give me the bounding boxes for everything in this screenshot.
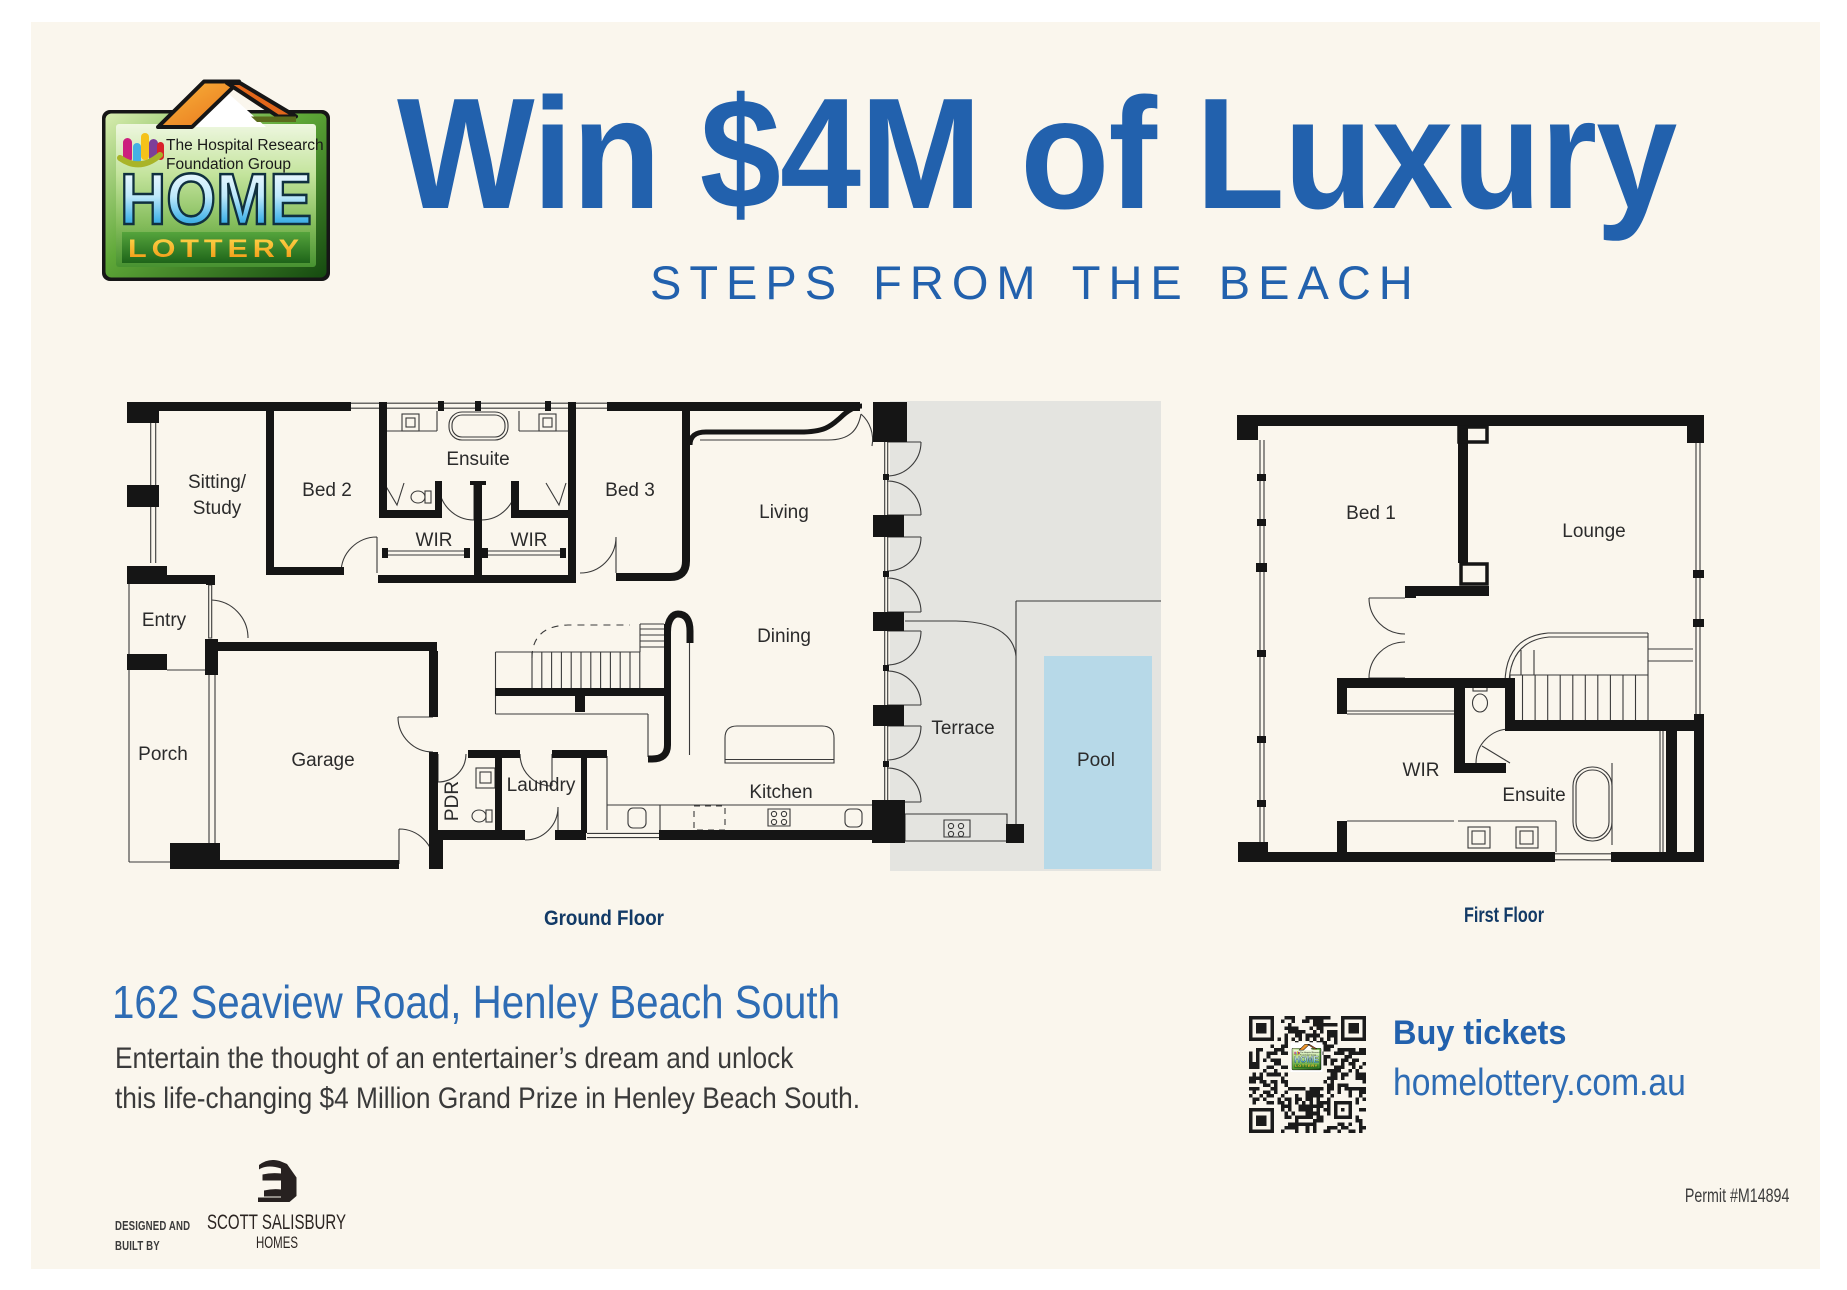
svg-text:Terrace: Terrace — [931, 718, 994, 739]
svg-text:Laundry: Laundry — [507, 775, 576, 796]
svg-text:Study: Study — [193, 498, 242, 519]
svg-text:Bed 3: Bed 3 — [605, 480, 655, 501]
svg-text:Entry: Entry — [142, 610, 187, 631]
svg-text:PDR: PDR — [442, 781, 463, 821]
svg-text:LOTTERY: LOTTERY — [128, 235, 304, 263]
svg-text:Lounge: Lounge — [1562, 521, 1625, 542]
svg-text:Kitchen: Kitchen — [749, 782, 812, 803]
svg-text:Porch: Porch — [138, 744, 188, 765]
svg-text:Bed 2: Bed 2 — [302, 480, 352, 501]
svg-text:Ensuite: Ensuite — [446, 449, 509, 470]
svg-text:The Hospital Research: The Hospital Research — [166, 137, 324, 154]
svg-text:WIR: WIR — [1403, 760, 1440, 781]
svg-text:Sitting/: Sitting/ — [188, 472, 247, 493]
svg-text:HOME: HOME — [120, 160, 312, 240]
svg-text:Bed 1: Bed 1 — [1346, 503, 1396, 524]
svg-text:Living: Living — [759, 502, 809, 523]
svg-text:SCOTT SALISBURY: SCOTT SALISBURY — [207, 1211, 346, 1234]
svg-text:WIR: WIR — [511, 530, 548, 551]
svg-text:Garage: Garage — [291, 750, 354, 771]
svg-text:Ensuite: Ensuite — [1502, 785, 1565, 806]
svg-text:HOMES: HOMES — [256, 1234, 298, 1252]
svg-text:WIR: WIR — [416, 530, 453, 551]
svg-text:Pool: Pool — [1077, 750, 1115, 771]
svg-text:Dining: Dining — [757, 626, 811, 647]
svg-text:Ground Floor: Ground Floor — [544, 907, 664, 930]
svg-text:First Floor: First Floor — [1464, 904, 1544, 927]
